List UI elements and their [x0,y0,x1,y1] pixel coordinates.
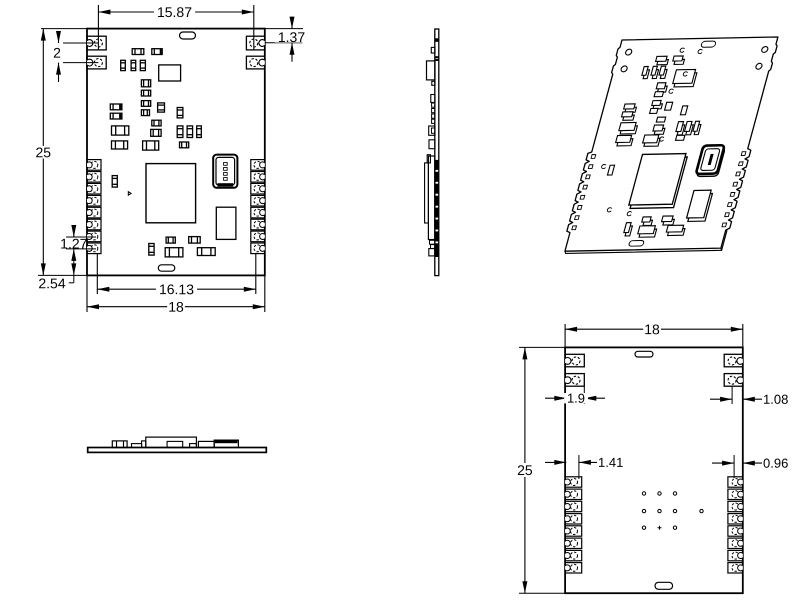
svg-text:18: 18 [644,321,660,337]
svg-text:1.41: 1.41 [598,455,623,470]
svg-text:1.37: 1.37 [278,29,305,45]
svg-text:2.54: 2.54 [38,275,65,291]
svg-text:2: 2 [53,45,61,61]
svg-text:25: 25 [517,462,533,478]
svg-text:0.96: 0.96 [763,456,788,471]
svg-text:16.13: 16.13 [159,281,194,297]
svg-text:1.27: 1.27 [60,235,87,251]
svg-text:18: 18 [168,299,184,315]
svg-text:1.08: 1.08 [763,392,788,407]
svg-text:1.9: 1.9 [567,391,585,406]
svg-text:25: 25 [36,144,52,160]
svg-text:15.87: 15.87 [157,4,192,20]
